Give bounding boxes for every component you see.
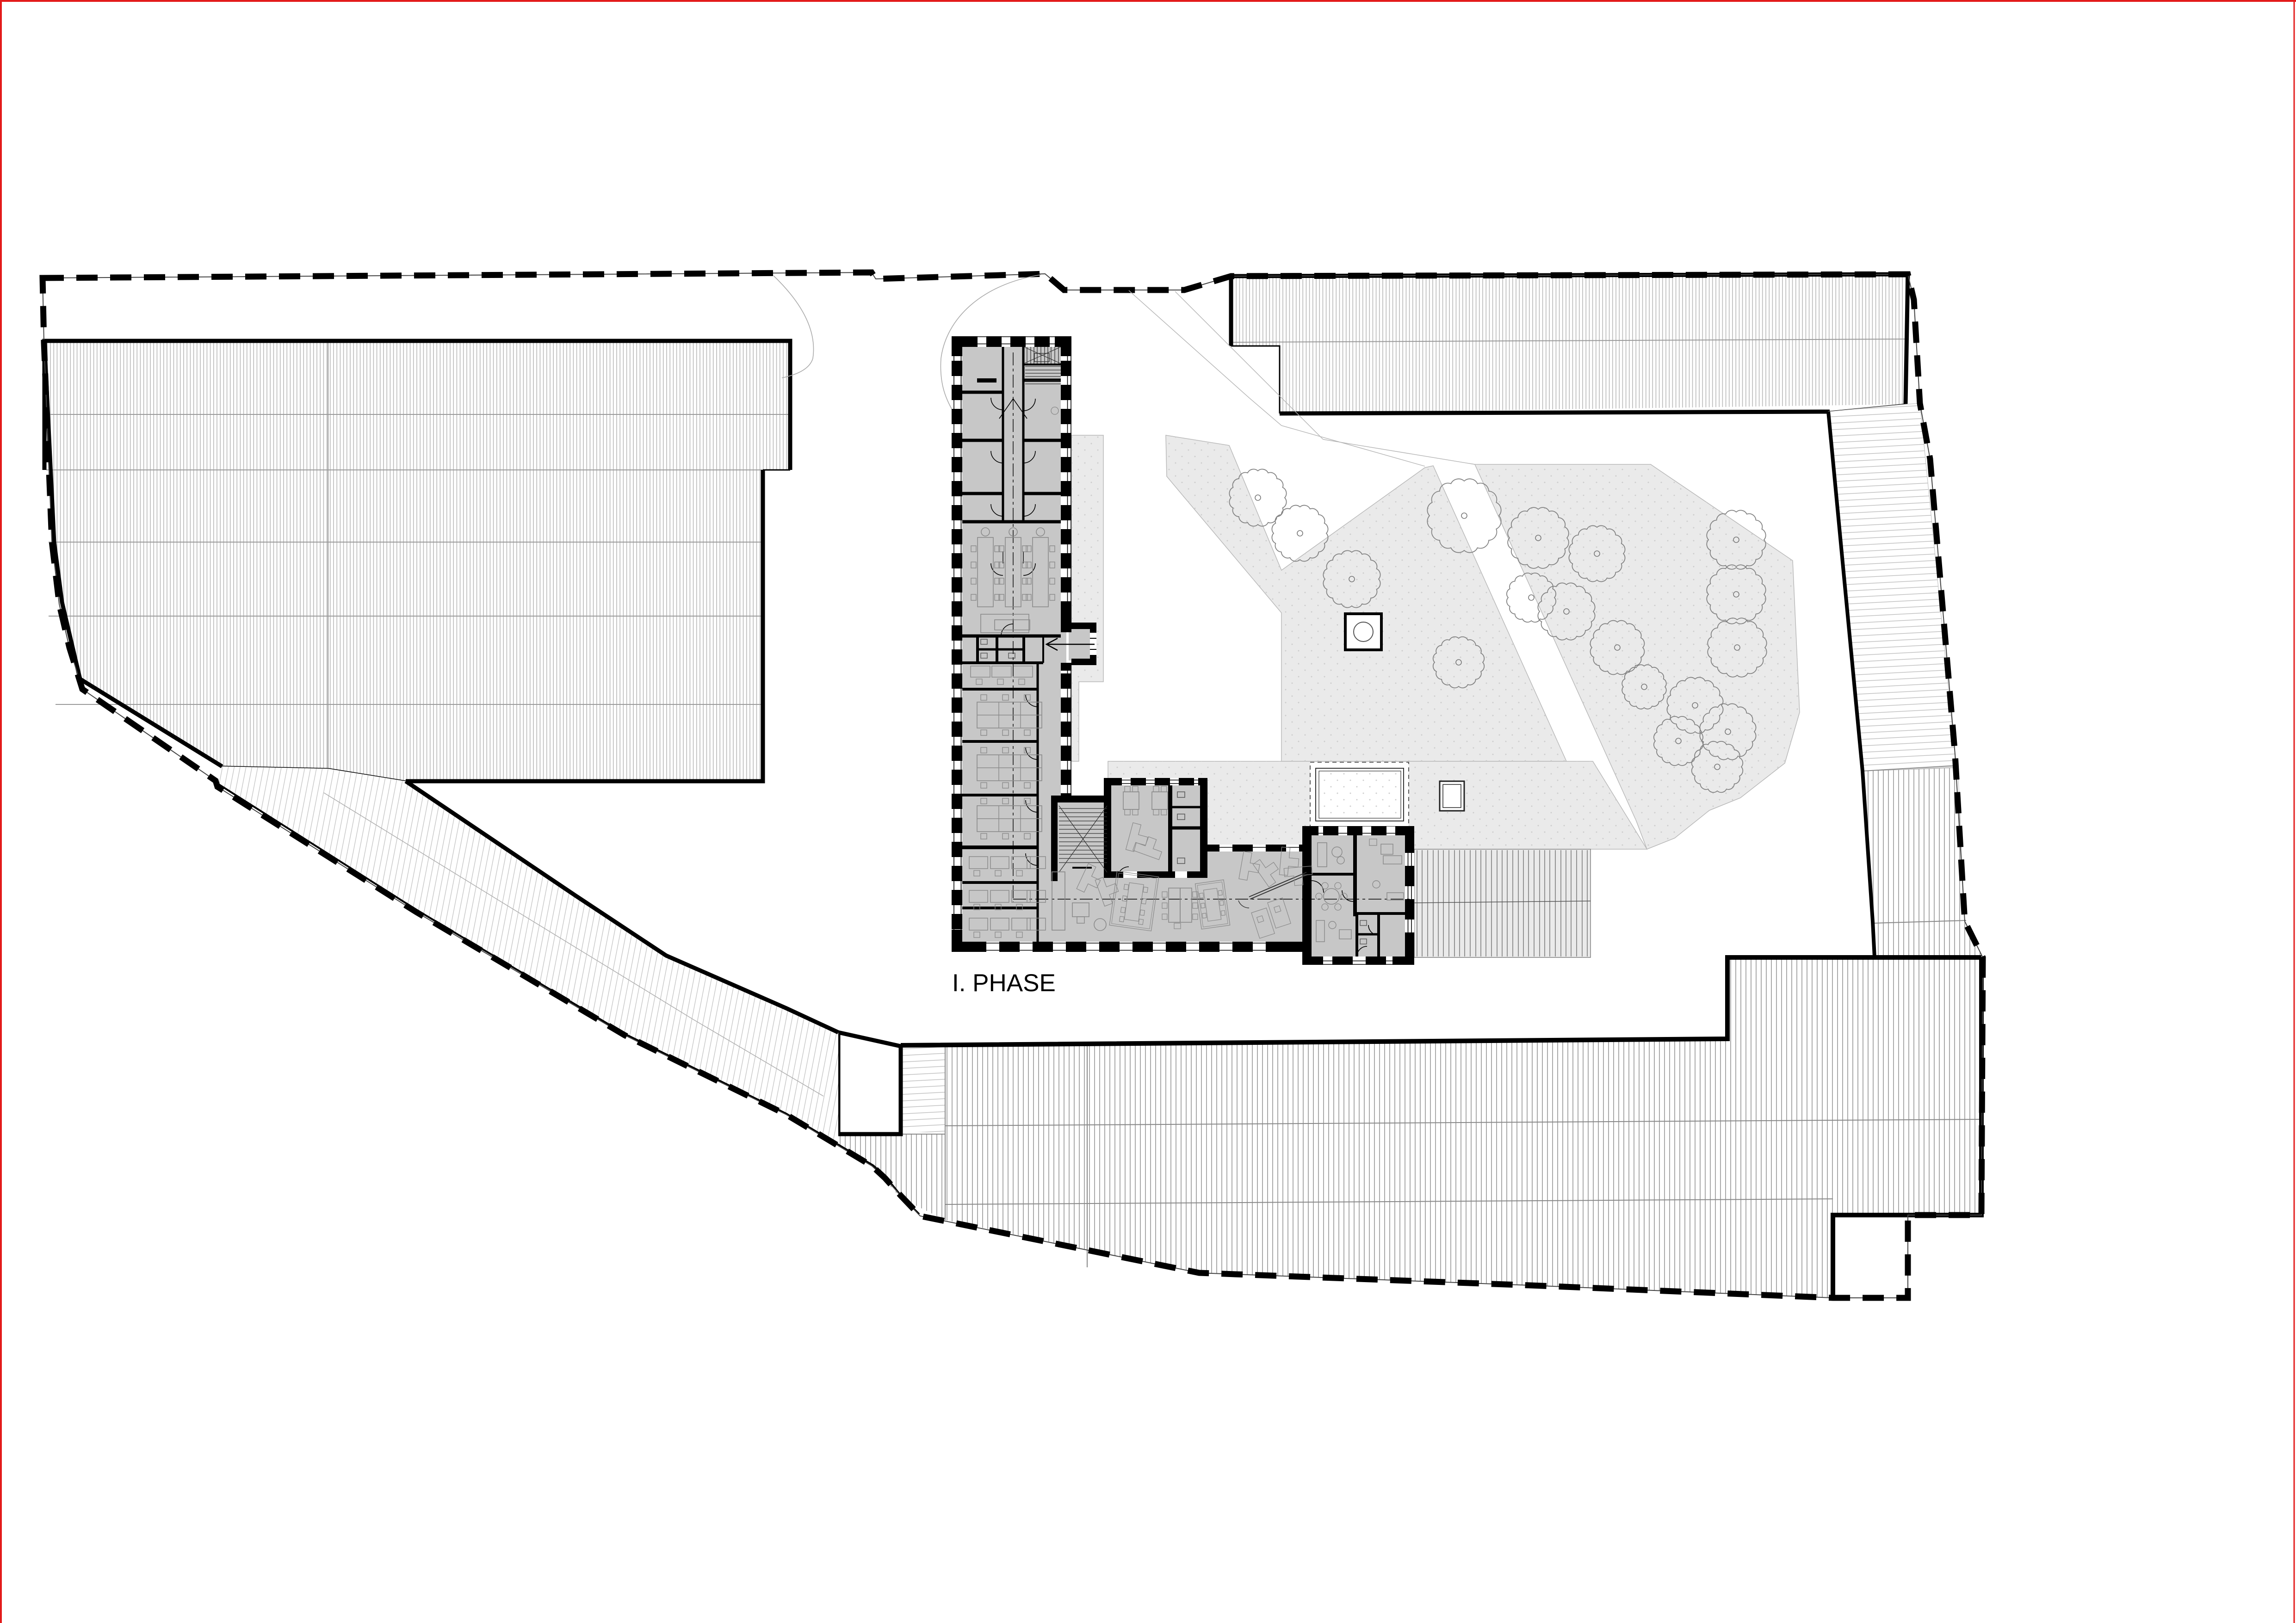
svg-text:I. PHASE: I. PHASE	[952, 969, 1056, 997]
